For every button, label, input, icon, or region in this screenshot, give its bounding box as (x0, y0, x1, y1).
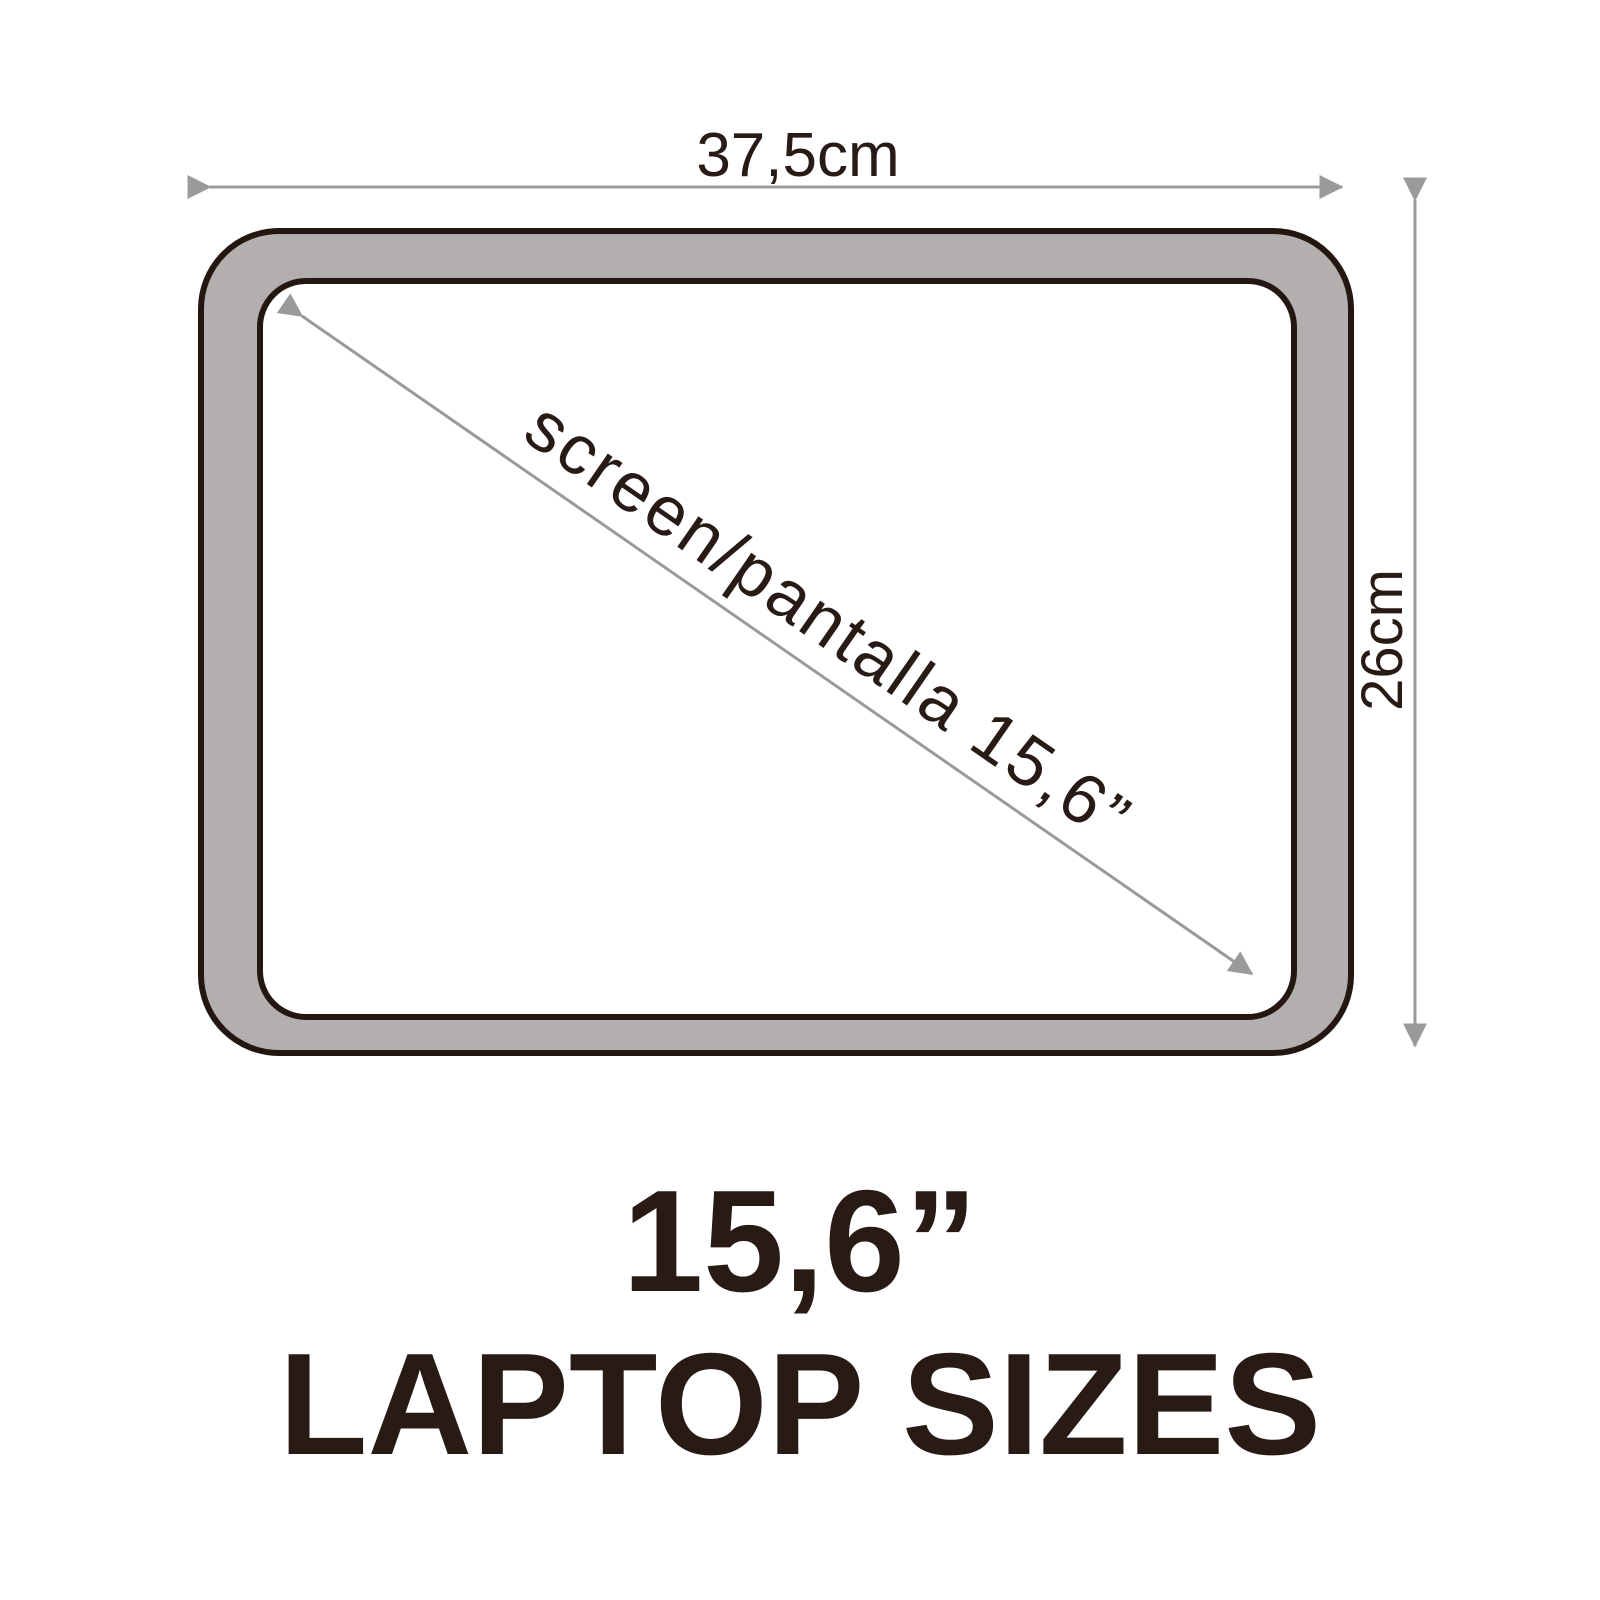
height-dimension-label: 26cm (1350, 569, 1415, 711)
diagram-canvas: 37,5cm 26cm screen/pantalla 15,6” (0, 0, 1600, 1110)
laptop-screen (260, 281, 1294, 1017)
size-heading: 15,6” (0, 1169, 1600, 1314)
laptop-size-infographic: 37,5cm 26cm screen/pantalla 15,6” 15,6” … (0, 0, 1600, 1600)
width-dimension-label: 37,5cm (696, 121, 899, 190)
caption-heading: LAPTOP SIZES (0, 1332, 1600, 1477)
